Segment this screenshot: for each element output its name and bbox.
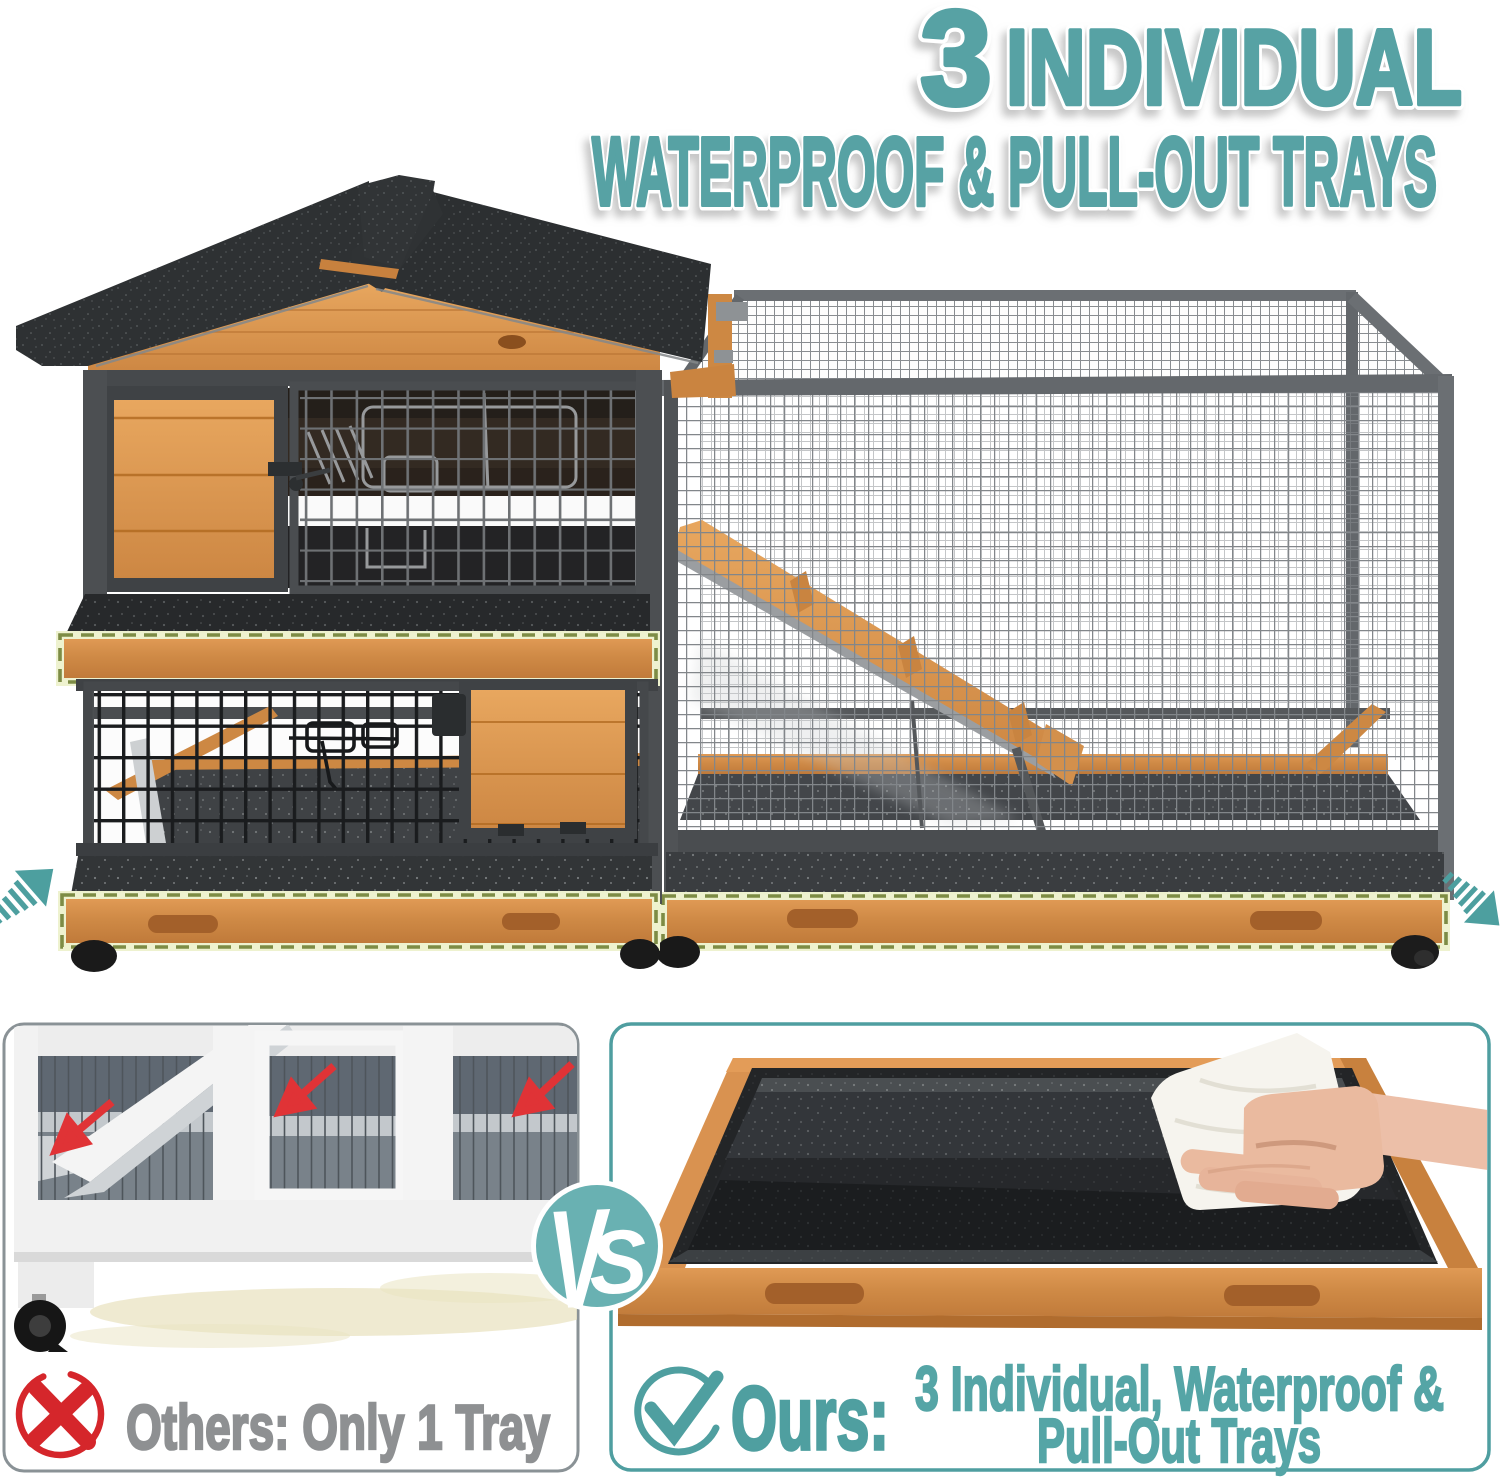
svg-text:WATERPROOF & PULL-OUT TRAYS: WATERPROOF & PULL-OUT TRAYS xyxy=(592,117,1437,226)
svg-text:S: S xyxy=(586,1211,649,1314)
svg-text:Others: Only 1 Tray: Others: Only 1 Tray xyxy=(126,1393,550,1463)
svg-text:Ours:: Ours: xyxy=(731,1369,889,1469)
svg-text:Pull-Out Trays: Pull-Out Trays xyxy=(1037,1407,1321,1476)
svg-text:INDIVIDUAL: INDIVIDUAL xyxy=(1006,7,1462,127)
svg-text:3: 3 xyxy=(920,0,992,133)
